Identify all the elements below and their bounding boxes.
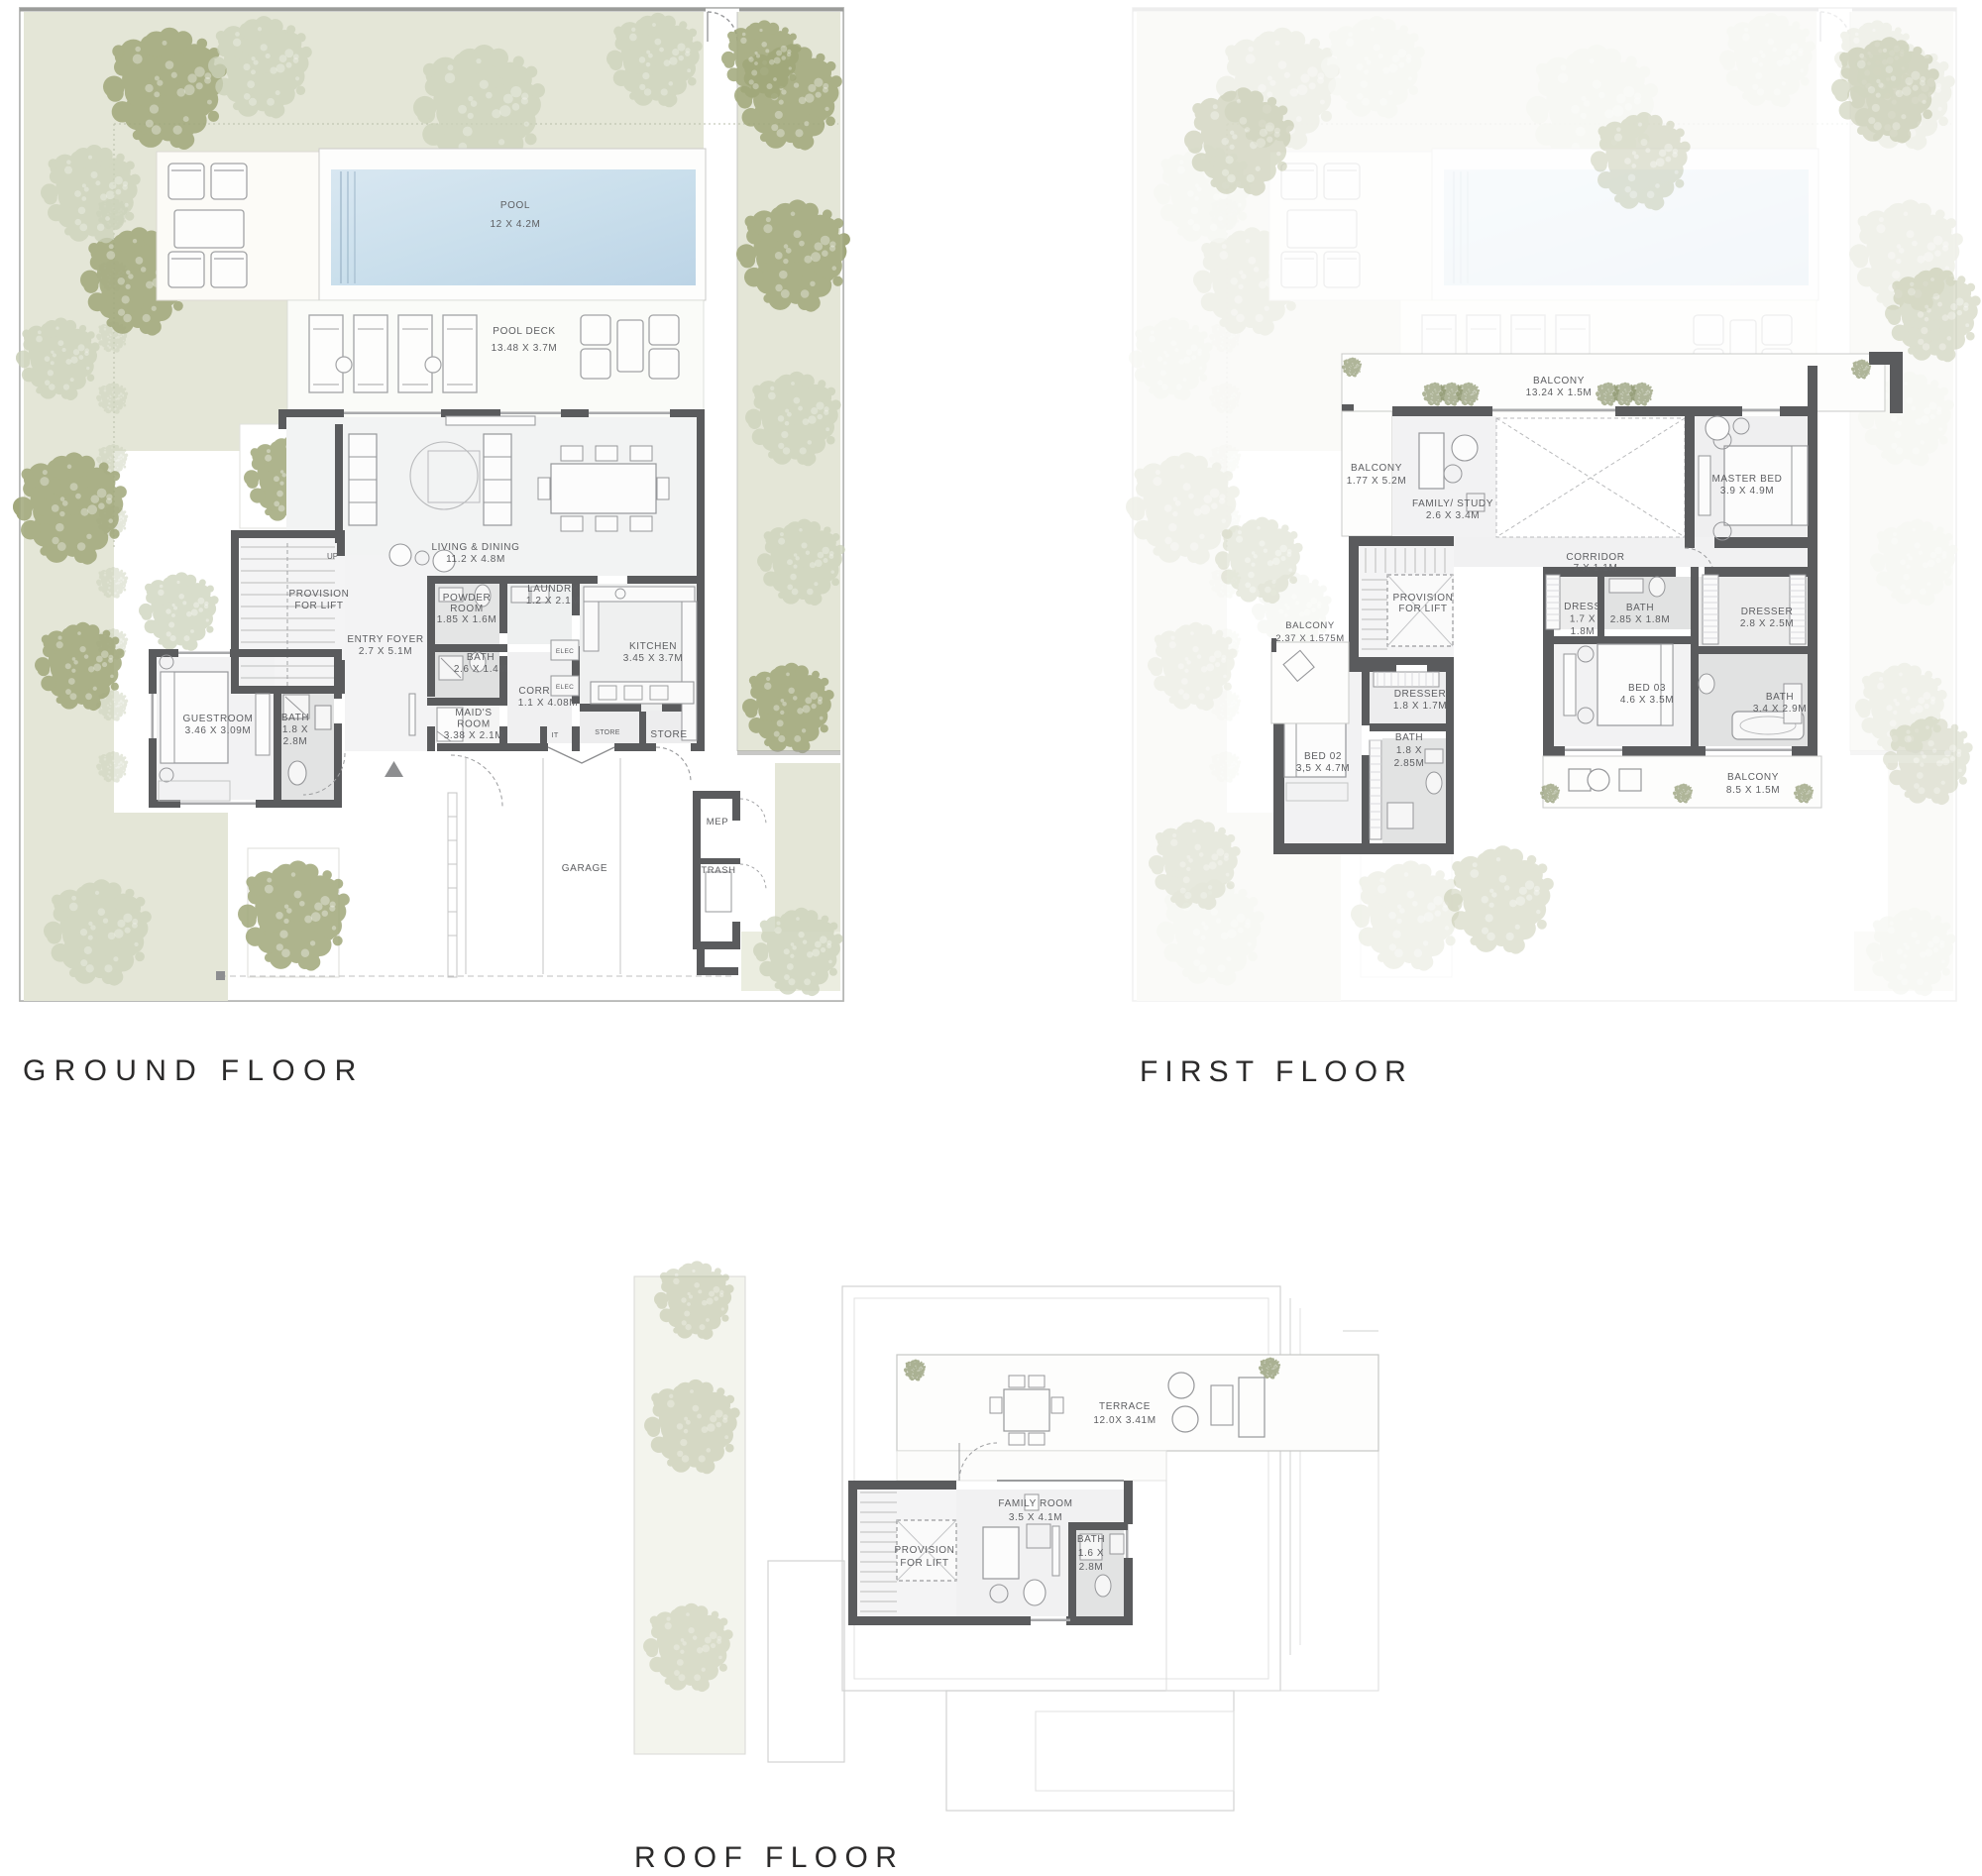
svg-text:ROOM: ROOM xyxy=(457,719,491,730)
svg-text:1.7 X: 1.7 X xyxy=(1570,614,1596,625)
svg-text:FOR LIFT: FOR LIFT xyxy=(900,1558,948,1569)
svg-text:2.6 X 3.4M: 2.6 X 3.4M xyxy=(1426,510,1480,521)
svg-text:CORRIDOR: CORRIDOR xyxy=(1566,552,1624,563)
svg-text:STORE: STORE xyxy=(595,729,620,736)
svg-text:BALCONY: BALCONY xyxy=(1533,376,1585,386)
svg-text:IT: IT xyxy=(551,730,558,739)
svg-text:FOR LIFT: FOR LIFT xyxy=(294,601,343,611)
svg-text:POOL DECK: POOL DECK xyxy=(493,326,555,337)
svg-text:1.8M: 1.8M xyxy=(1571,626,1596,637)
svg-text:DRESSER: DRESSER xyxy=(1741,607,1794,617)
svg-text:TRASH: TRASH xyxy=(701,865,735,876)
svg-text:ROOM: ROOM xyxy=(450,604,484,614)
svg-text:KITCHEN: KITCHEN xyxy=(629,641,677,652)
svg-text:PROVISION: PROVISION xyxy=(895,1545,955,1556)
svg-text:BATH: BATH xyxy=(1077,1534,1105,1545)
svg-text:ROOF FLOOR: ROOF FLOOR xyxy=(634,1841,904,1874)
svg-text:2.7 X 5.1M: 2.7 X 5.1M xyxy=(359,646,412,657)
svg-text:BATH: BATH xyxy=(281,713,309,723)
svg-text:GROUND FLOOR: GROUND FLOOR xyxy=(23,1054,365,1087)
svg-text:MEP: MEP xyxy=(707,817,728,828)
svg-text:1.2 X 2.1M: 1.2 X 2.1M xyxy=(526,596,580,607)
svg-text:POOL: POOL xyxy=(500,200,530,211)
svg-text:3,5 X 4.7M: 3,5 X 4.7M xyxy=(1296,763,1350,774)
svg-text:1.77 X 5.2M: 1.77 X 5.2M xyxy=(1347,476,1407,487)
svg-text:1.6 X: 1.6 X xyxy=(1078,1548,1104,1559)
svg-text:TERRACE: TERRACE xyxy=(1099,1401,1151,1412)
svg-text:STORE: STORE xyxy=(650,729,687,740)
svg-text:1.8 X: 1.8 X xyxy=(1396,745,1422,756)
svg-text:ELEC: ELEC xyxy=(556,648,574,655)
svg-text:BALCONY: BALCONY xyxy=(1727,772,1779,783)
svg-text:PROVISION: PROVISION xyxy=(1393,593,1454,604)
svg-text:LIVING & DINING: LIVING & DINING xyxy=(431,542,519,553)
svg-text:13.24 X 1.5M: 13.24 X 1.5M xyxy=(1526,387,1593,398)
svg-text:3.46 X 3.09M: 3.46 X 3.09M xyxy=(185,725,252,736)
svg-text:PROVISION: PROVISION xyxy=(289,589,350,600)
svg-text:POWDER: POWDER xyxy=(443,593,492,604)
svg-text:LAUNDRY: LAUNDRY xyxy=(527,584,579,595)
svg-text:3.5 X 4.1M: 3.5 X 4.1M xyxy=(1009,1512,1062,1523)
svg-text:MAID'S: MAID'S xyxy=(455,708,492,718)
svg-text:BATH: BATH xyxy=(1766,692,1794,703)
svg-text:BATH: BATH xyxy=(1626,603,1654,613)
svg-text:2.8 X 2.5M: 2.8 X 2.5M xyxy=(1740,618,1794,629)
svg-text:DRESSER: DRESSER xyxy=(1394,689,1447,700)
svg-text:GARAGE: GARAGE xyxy=(562,863,607,874)
svg-text:3.38 X 2.1M: 3.38 X 2.1M xyxy=(444,730,504,741)
svg-text:11.2 X 4.8M: 11.2 X 4.8M xyxy=(446,554,505,565)
svg-text:2.85 X 1.8M: 2.85 X 1.8M xyxy=(1610,614,1671,625)
svg-text:1.1 X 4.08M: 1.1 X 4.08M xyxy=(518,698,579,709)
svg-text:MASTER BED: MASTER BED xyxy=(1711,474,1782,485)
svg-text:2.6 X 1.4M: 2.6 X 1.4M xyxy=(454,664,507,675)
svg-text:BATH: BATH xyxy=(467,652,495,663)
svg-text:BED 03: BED 03 xyxy=(1628,683,1666,694)
svg-text:BALCONY: BALCONY xyxy=(1285,620,1335,631)
svg-text:FIRST FLOOR: FIRST FLOOR xyxy=(1140,1055,1413,1088)
svg-text:4.6 X 3.5M: 4.6 X 3.5M xyxy=(1620,695,1674,706)
svg-text:1.85 X 1.6M: 1.85 X 1.6M xyxy=(437,614,497,625)
svg-text:3.4 X 2.9M: 3.4 X 2.9M xyxy=(1753,704,1807,715)
svg-text:GUESTROOM: GUESTROOM xyxy=(183,714,254,724)
svg-text:12.0X 3.41M: 12.0X 3.41M xyxy=(1093,1415,1156,1426)
svg-text:FAMILY ROOM: FAMILY ROOM xyxy=(998,1498,1072,1509)
svg-text:7 X 1.1M: 7 X 1.1M xyxy=(1574,563,1618,574)
svg-text:FOR LIFT: FOR LIFT xyxy=(1398,604,1447,614)
svg-text:3.45 X 3.7M: 3.45 X 3.7M xyxy=(623,653,684,664)
svg-text:ELEC: ELEC xyxy=(556,684,574,691)
svg-text:BALCONY: BALCONY xyxy=(1351,463,1402,474)
svg-text:13.48 X 3.7M: 13.48 X 3.7M xyxy=(492,343,558,354)
svg-text:BED 02: BED 02 xyxy=(1304,751,1342,762)
svg-text:UP: UP xyxy=(327,552,338,561)
svg-text:DRESS: DRESS xyxy=(1564,602,1600,612)
svg-text:ENTRY FOYER: ENTRY FOYER xyxy=(347,634,423,645)
svg-text:1.8 X: 1.8 X xyxy=(282,724,308,735)
svg-text:1.8 X 1.7M: 1.8 X 1.7M xyxy=(1393,701,1447,712)
svg-text:12 X 4.2M: 12 X 4.2M xyxy=(491,219,541,230)
svg-text:8.5 X 1.5M: 8.5 X 1.5M xyxy=(1726,785,1780,796)
svg-text:3.9 X 4.9M: 3.9 X 4.9M xyxy=(1720,486,1774,497)
svg-text:2.37 X 1.575M: 2.37 X 1.575M xyxy=(1275,633,1345,644)
svg-text:BATH: BATH xyxy=(1395,732,1423,743)
svg-text:2.85M: 2.85M xyxy=(1394,758,1425,769)
svg-text:FAMILY/ STUDY: FAMILY/ STUDY xyxy=(1412,498,1493,509)
svg-text:2.8M: 2.8M xyxy=(283,736,308,747)
svg-text:2.8M: 2.8M xyxy=(1079,1562,1104,1573)
